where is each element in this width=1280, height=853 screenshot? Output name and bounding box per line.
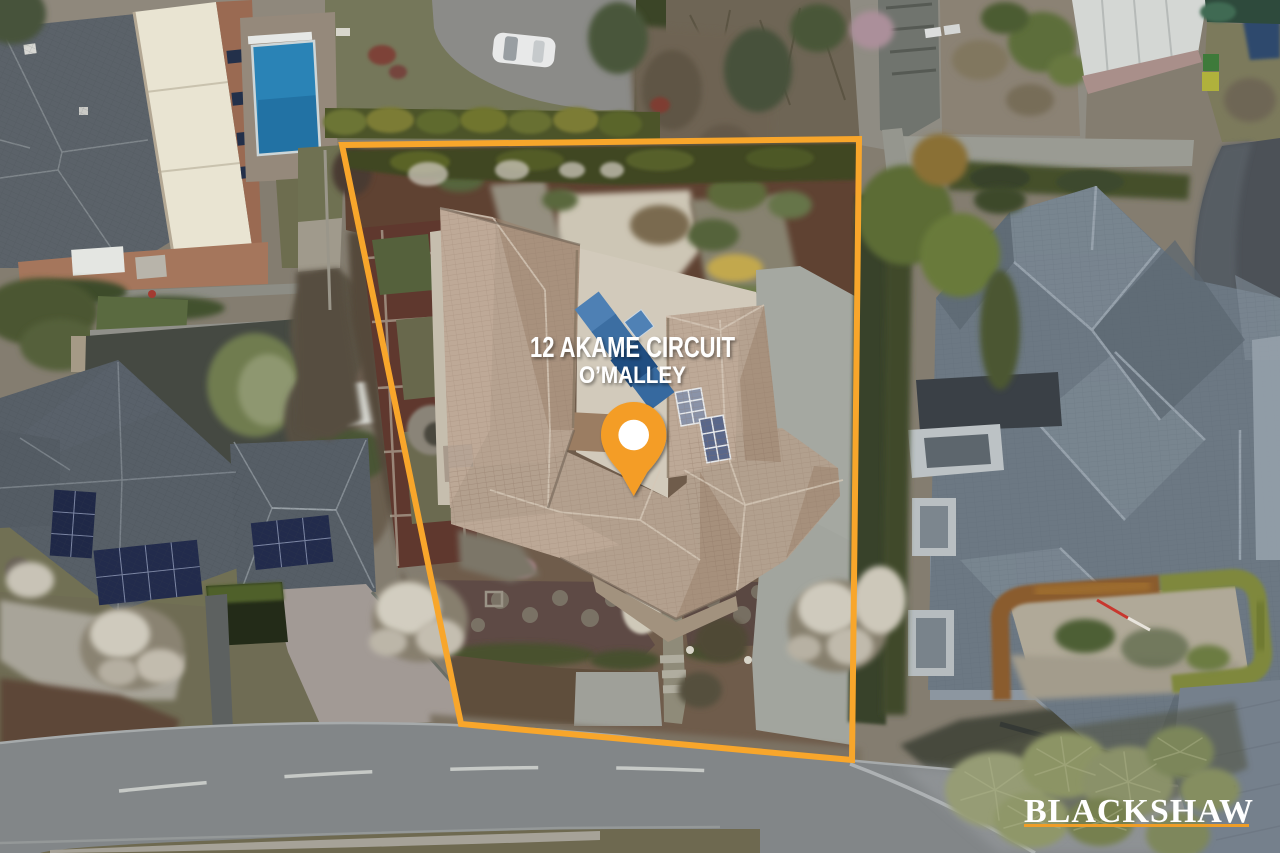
svg-text:O’MALLEY: O’MALLEY [579,362,686,389]
svg-text:12 AKAME CIRCUIT: 12 AKAME CIRCUIT [530,332,735,364]
